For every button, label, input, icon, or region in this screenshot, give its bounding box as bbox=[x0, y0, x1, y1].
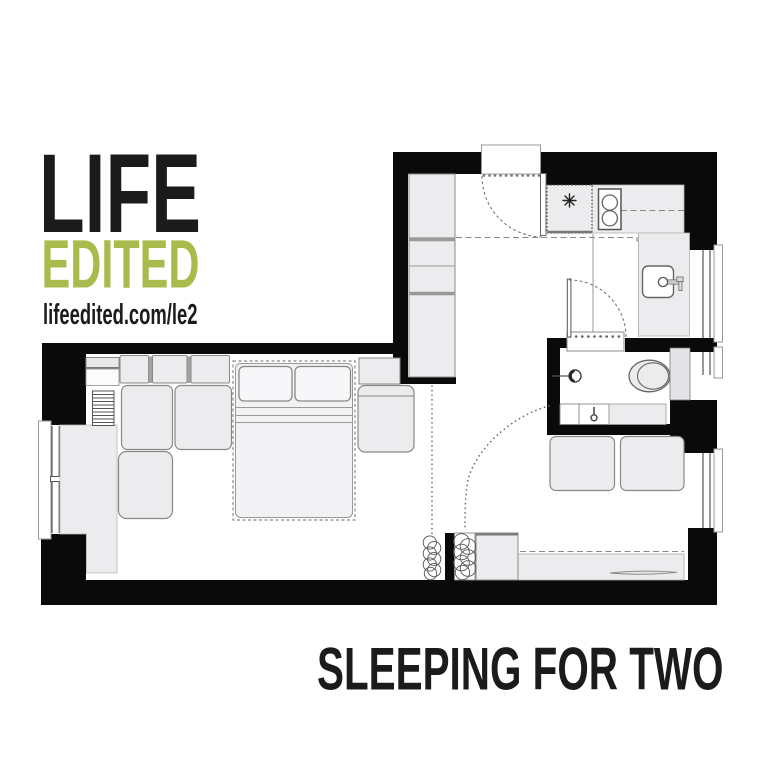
svg-text:lifeedited.com/le2: lifeedited.com/le2 bbox=[43, 299, 198, 331]
svg-text:EDITED: EDITED bbox=[42, 226, 200, 303]
svg-text:SLEEPING FOR TWO: SLEEPING FOR TWO bbox=[317, 635, 724, 703]
